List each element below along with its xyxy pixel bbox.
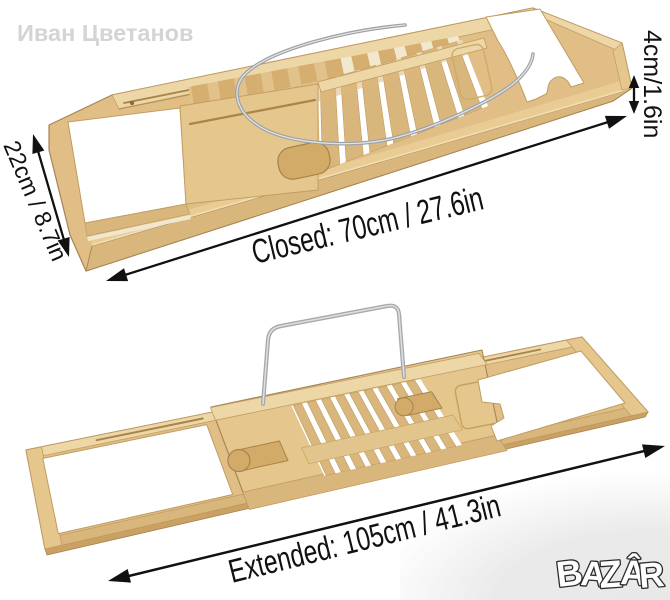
svg-text:R: R (637, 555, 666, 596)
svg-text:Иван Цветанов: Иван Цветанов (17, 20, 193, 46)
svg-text:4cm/1.6in: 4cm/1.6in (638, 30, 666, 138)
